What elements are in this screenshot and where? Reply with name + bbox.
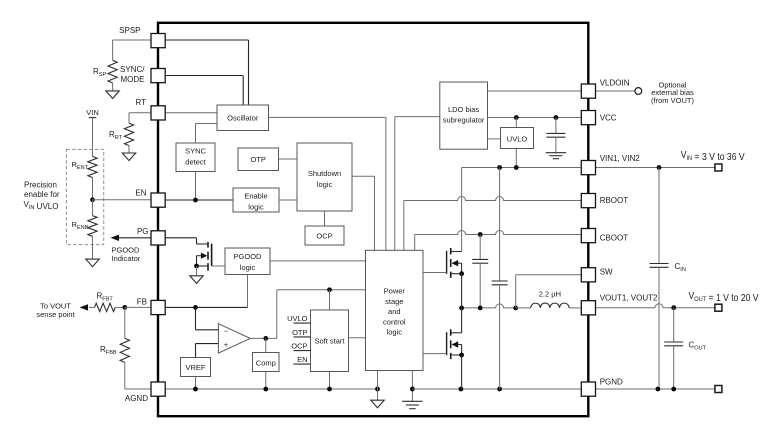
svg-text:AGND: AGND <box>125 394 148 403</box>
svg-text:RT: RT <box>135 98 146 107</box>
svg-text:PGOOD: PGOOD <box>112 246 141 255</box>
svg-text:Shutdown: Shutdown <box>308 169 341 178</box>
svg-text:VIN: VIN <box>86 108 99 117</box>
svg-text:logic: logic <box>240 263 256 272</box>
svg-text:Precision: Precision <box>24 181 57 190</box>
svg-text:VREF: VREF <box>185 363 205 372</box>
svg-text:UVLO: UVLO <box>507 134 528 143</box>
svg-text:EN: EN <box>297 355 307 364</box>
svg-text:sense point: sense point <box>36 310 75 319</box>
svg-text:SYNC/: SYNC/ <box>120 65 145 74</box>
svg-text:control: control <box>383 317 406 326</box>
svg-text:logic: logic <box>248 203 264 212</box>
svg-text:OCP: OCP <box>291 342 307 351</box>
svg-text:+: + <box>224 340 229 349</box>
svg-text:Enable: Enable <box>244 192 267 201</box>
svg-text:2.2 µH: 2.2 µH <box>539 289 561 298</box>
svg-text:PG: PG <box>137 227 149 236</box>
svg-text:SYNC: SYNC <box>185 146 206 155</box>
svg-text:(from VOUT): (from VOUT) <box>651 96 694 105</box>
svg-text:SW: SW <box>600 267 613 276</box>
svg-text:PGND: PGND <box>600 377 623 386</box>
svg-text:Oscillator: Oscillator <box>227 114 259 123</box>
svg-text:UVLO: UVLO <box>287 314 308 323</box>
svg-text:VIN UVLO: VIN UVLO <box>24 200 59 211</box>
svg-text:Indicator: Indicator <box>112 254 141 263</box>
svg-text:VLDOIN: VLDOIN <box>600 79 630 88</box>
svg-text:SPSP: SPSP <box>119 26 140 35</box>
svg-text:VOUT1, VOUT2: VOUT1, VOUT2 <box>600 293 658 302</box>
svg-text:−: − <box>224 326 229 335</box>
svg-text:and: and <box>388 307 401 316</box>
svg-text:FB: FB <box>137 298 147 307</box>
svg-text:stage: stage <box>385 297 403 306</box>
svg-text:Soft start: Soft start <box>314 336 345 345</box>
svg-text:CBOOT: CBOOT <box>600 234 629 243</box>
svg-text:MODE: MODE <box>121 75 145 84</box>
svg-text:OTP: OTP <box>250 155 265 164</box>
svg-text:detect: detect <box>185 157 206 166</box>
svg-text:VIN1, VIN2: VIN1, VIN2 <box>600 154 641 163</box>
svg-text:logic: logic <box>317 180 333 189</box>
svg-text:OTP: OTP <box>292 328 307 337</box>
svg-text:EN: EN <box>135 189 146 198</box>
svg-text:RBOOT: RBOOT <box>600 196 629 205</box>
svg-text:VCC: VCC <box>600 114 617 123</box>
svg-text:enable for: enable for <box>24 190 60 199</box>
svg-text:LDO bias: LDO bias <box>448 105 480 114</box>
svg-text:Comp: Comp <box>256 358 276 367</box>
svg-text:subregulator: subregulator <box>443 115 485 124</box>
svg-text:OCP: OCP <box>316 232 332 241</box>
svg-text:logic: logic <box>387 328 403 337</box>
svg-text:Power: Power <box>384 287 406 296</box>
svg-text:PGOOD: PGOOD <box>234 252 263 261</box>
svg-text:To VOUT: To VOUT <box>40 301 71 310</box>
